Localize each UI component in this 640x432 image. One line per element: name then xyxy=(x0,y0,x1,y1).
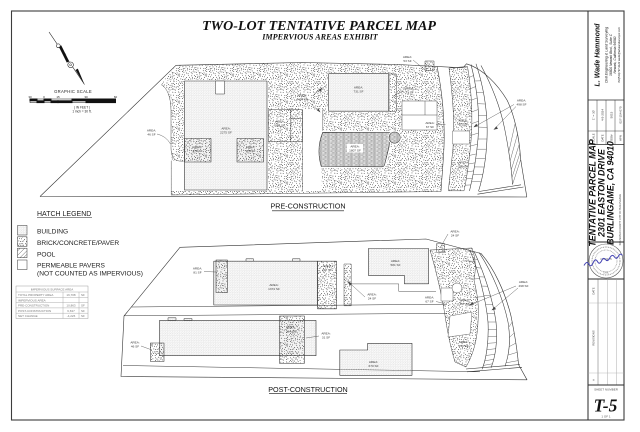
svg-text:POOL: POOL xyxy=(37,251,56,258)
svg-text:GRAPHIC SCALE: GRAPHIC SCALE xyxy=(54,89,92,94)
svg-text:24 SF: 24 SF xyxy=(368,297,376,301)
svg-text:670 SF: 670 SF xyxy=(369,364,379,368)
svg-text:731 SF: 731 SF xyxy=(354,90,364,94)
svg-text:278 SF: 278 SF xyxy=(193,149,203,153)
svg-text:BUILDING: BUILDING xyxy=(37,229,68,236)
svg-text:4434 SF: 4434 SF xyxy=(296,98,308,102)
svg-text:PRE-CONSTRUCTION: PRE-CONSTRUCTION xyxy=(18,304,49,308)
svg-text:253 SF: 253 SF xyxy=(459,344,469,348)
svg-text:SF: SF xyxy=(81,309,85,313)
svg-text:HATCH LEGEND: HATCH LEGEND xyxy=(37,211,91,218)
svg-text:IMPERVIOUS AREAS EXHIBIT: IMPERVIOUS AREAS EXHIBIT xyxy=(261,33,379,42)
svg-text:PRE-CONSTRUCTION: PRE-CONSTRUCTION xyxy=(270,202,345,211)
svg-text:46 SF: 46 SF xyxy=(131,345,139,349)
svg-text:16,708: 16,708 xyxy=(66,293,76,297)
svg-text:1" = 30': 1" = 30' xyxy=(592,110,596,120)
svg-text:581 SF: 581 SF xyxy=(391,263,401,267)
svg-text:176 SF: 176 SF xyxy=(246,149,256,153)
svg-text:46 SF: 46 SF xyxy=(147,133,155,137)
svg-text:BRICK/CONCRETE/PAVER: BRICK/CONCRETE/PAVER xyxy=(37,240,119,247)
svg-text:APN: APN xyxy=(619,135,623,141)
svg-text:Newark, California 94560: Newark, California 94560 xyxy=(613,36,617,73)
svg-text:IMPERVIOUS SURFACE AREA: IMPERVIOUS SURFACE AREA xyxy=(31,287,74,291)
svg-text:67 SF: 67 SF xyxy=(425,300,433,304)
svg-text:364 SF: 364 SF xyxy=(286,330,296,334)
svg-text:CITY OF BURLINGAME: CITY OF BURLINGAME xyxy=(619,194,622,220)
svg-text:31 SF: 31 SF xyxy=(322,336,330,340)
svg-text:53 SF: 53 SF xyxy=(403,59,411,63)
svg-text:POST-CONSTRUCTION: POST-CONSTRUCTION xyxy=(18,309,51,313)
svg-text:-4,226: -4,226 xyxy=(67,314,76,318)
svg-text:81 SF: 81 SF xyxy=(193,271,201,275)
svg-text:297 SF: 297 SF xyxy=(322,268,332,272)
svg-text:24 SF: 24 SF xyxy=(451,234,459,238)
svg-text:IMPERVIOUS AREA: IMPERVIOUS AREA xyxy=(18,298,46,302)
svg-text:457 SF: 457 SF xyxy=(458,123,468,127)
svg-text:60: 60 xyxy=(114,95,118,99)
svg-text:L. Wade Hammond: L. Wade Hammond xyxy=(595,23,602,87)
svg-text:POST-CONSTRUCTION: POST-CONSTRUCTION xyxy=(268,385,347,394)
svg-text:457 SF: 457 SF xyxy=(460,302,470,306)
svg-text:027-154-070: 027-154-070 xyxy=(619,106,623,123)
svg-text:SHEET NUMBER: SHEET NUMBER xyxy=(594,388,619,392)
svg-text:1807 SF: 1807 SF xyxy=(349,149,361,153)
svg-text:(NOT COUNTED AS IMPERVIOUS): (NOT COUNTED AS IMPERVIOUS) xyxy=(37,271,143,278)
svg-text:T-5: T-5 xyxy=(594,396,618,416)
svg-text:PERMEABLE PAVERS: PERMEABLE PAVERS xyxy=(37,263,106,270)
svg-text:5015: 5015 xyxy=(610,111,614,118)
svg-text:30: 30 xyxy=(28,95,32,99)
svg-text:TOTAL PROPERTY AREA: TOTAL PROPERTY AREA xyxy=(18,293,53,297)
svg-text:6,637: 6,637 xyxy=(67,309,75,313)
svg-text:1 OF 1: 1 OF 1 xyxy=(601,415,611,419)
svg-text:4-5-2024: 4-5-2024 xyxy=(601,109,605,121)
svg-text:498 SF: 498 SF xyxy=(519,284,529,288)
svg-text:JOB#: JOB# xyxy=(610,134,614,141)
svg-text:REVISIONS: REVISIONS xyxy=(592,330,596,345)
svg-text:1374 SF: 1374 SF xyxy=(268,287,280,291)
svg-text:NET CHANGE: NET CHANGE xyxy=(18,314,38,318)
svg-text:DATE: DATE xyxy=(601,134,605,141)
svg-text:203 SF: 203 SF xyxy=(458,165,468,169)
svg-text:Tel:(510)797-9123 wade@whalan: Tel:(510)797-9123 wade@whalandsurveyor.c… xyxy=(617,26,621,83)
svg-text:DATE: DATE xyxy=(592,287,596,294)
svg-text:15: 15 xyxy=(56,95,60,99)
svg-text:Civil Engineering & Land Surve: Civil Engineering & Land Surveying xyxy=(605,27,609,83)
svg-text:SF: SF xyxy=(81,293,85,297)
svg-text:288 SF: 288 SF xyxy=(275,124,285,128)
svg-text:CIVIL: CIVIL xyxy=(603,273,609,275)
svg-text:498 SF: 498 SF xyxy=(517,103,527,107)
svg-text:2275 SF: 2275 SF xyxy=(220,131,232,135)
svg-text:10,863: 10,863 xyxy=(66,304,76,308)
svg-text:1 inch = 30 ft.: 1 inch = 30 ft. xyxy=(72,109,91,113)
svg-text:73 SF: 73 SF xyxy=(405,91,413,95)
svg-text:SF: SF xyxy=(81,314,85,318)
svg-text:30: 30 xyxy=(84,95,88,99)
svg-text:SF: SF xyxy=(81,304,85,308)
svg-text:BURLINGAME, CA 94010: BURLINGAME, CA 94010 xyxy=(606,141,616,245)
svg-text:67 SF: 67 SF xyxy=(426,125,434,129)
